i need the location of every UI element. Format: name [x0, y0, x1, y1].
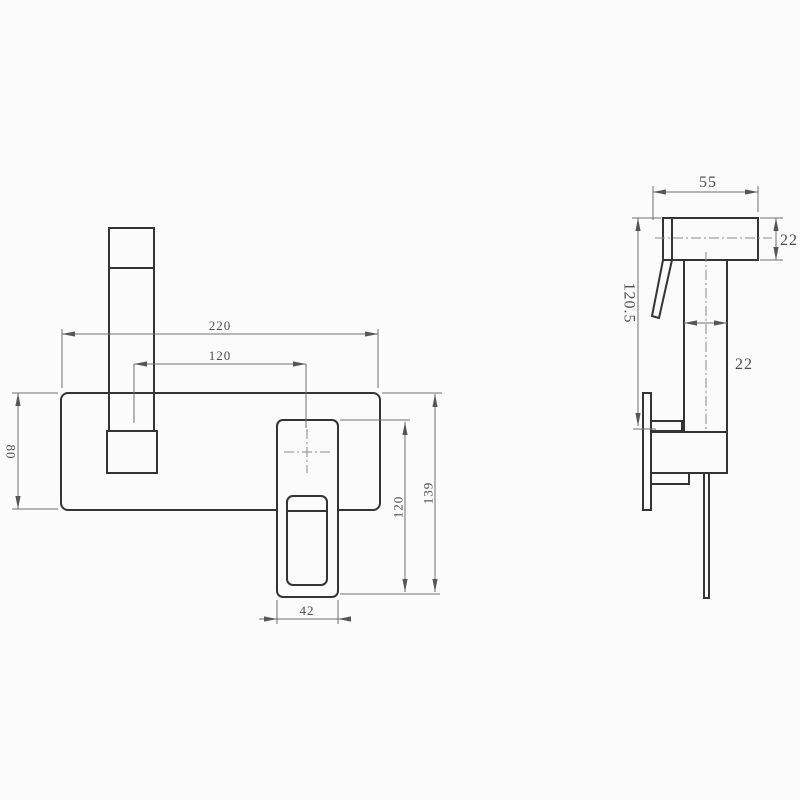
- dim-overall-drop: 120.5: [621, 218, 662, 429]
- side-valve-body: [651, 432, 727, 473]
- side-handle: [663, 218, 758, 260]
- side-supply-pipe: [704, 473, 709, 598]
- dim-body-width: 22: [684, 320, 753, 373]
- front-spout-outlet: [107, 431, 157, 473]
- dim-label-plate-height: 80: [4, 445, 19, 460]
- dim-overall-height: 139: [382, 393, 442, 592]
- dim-label-spout-to-handle: 120: [209, 348, 232, 363]
- front-spout-column: [109, 228, 154, 431]
- side-mount-tab-bottom: [651, 473, 689, 484]
- dim-label-handle-width: 42: [300, 603, 315, 618]
- dim-plate-height: 80: [4, 393, 59, 509]
- dim-label-body-width: 22: [735, 356, 753, 373]
- side-wall-plate: [643, 393, 651, 510]
- dim-label-handle-length: 120: [391, 496, 406, 519]
- dim-handle-depth: 55: [653, 174, 758, 220]
- dim-handle-width: 42: [259, 600, 351, 624]
- technical-drawing: 220 120 80 42: [0, 0, 800, 800]
- dim-label-overall-height: 139: [421, 482, 436, 505]
- dim-handle-length: 120: [340, 420, 440, 594]
- dim-label-plate-width: 220: [209, 318, 232, 333]
- dim-label-handle-depth: 55: [699, 174, 717, 191]
- side-handle-lever: [652, 260, 672, 318]
- dim-label-handle-thickness: 22: [780, 232, 798, 249]
- dim-label-overall-drop: 120.5: [621, 283, 638, 324]
- drawing-canvas: 220 120 80 42: [0, 0, 800, 800]
- dim-spout-to-handle: 120: [134, 348, 306, 423]
- dim-handle-thickness: 22: [760, 218, 798, 260]
